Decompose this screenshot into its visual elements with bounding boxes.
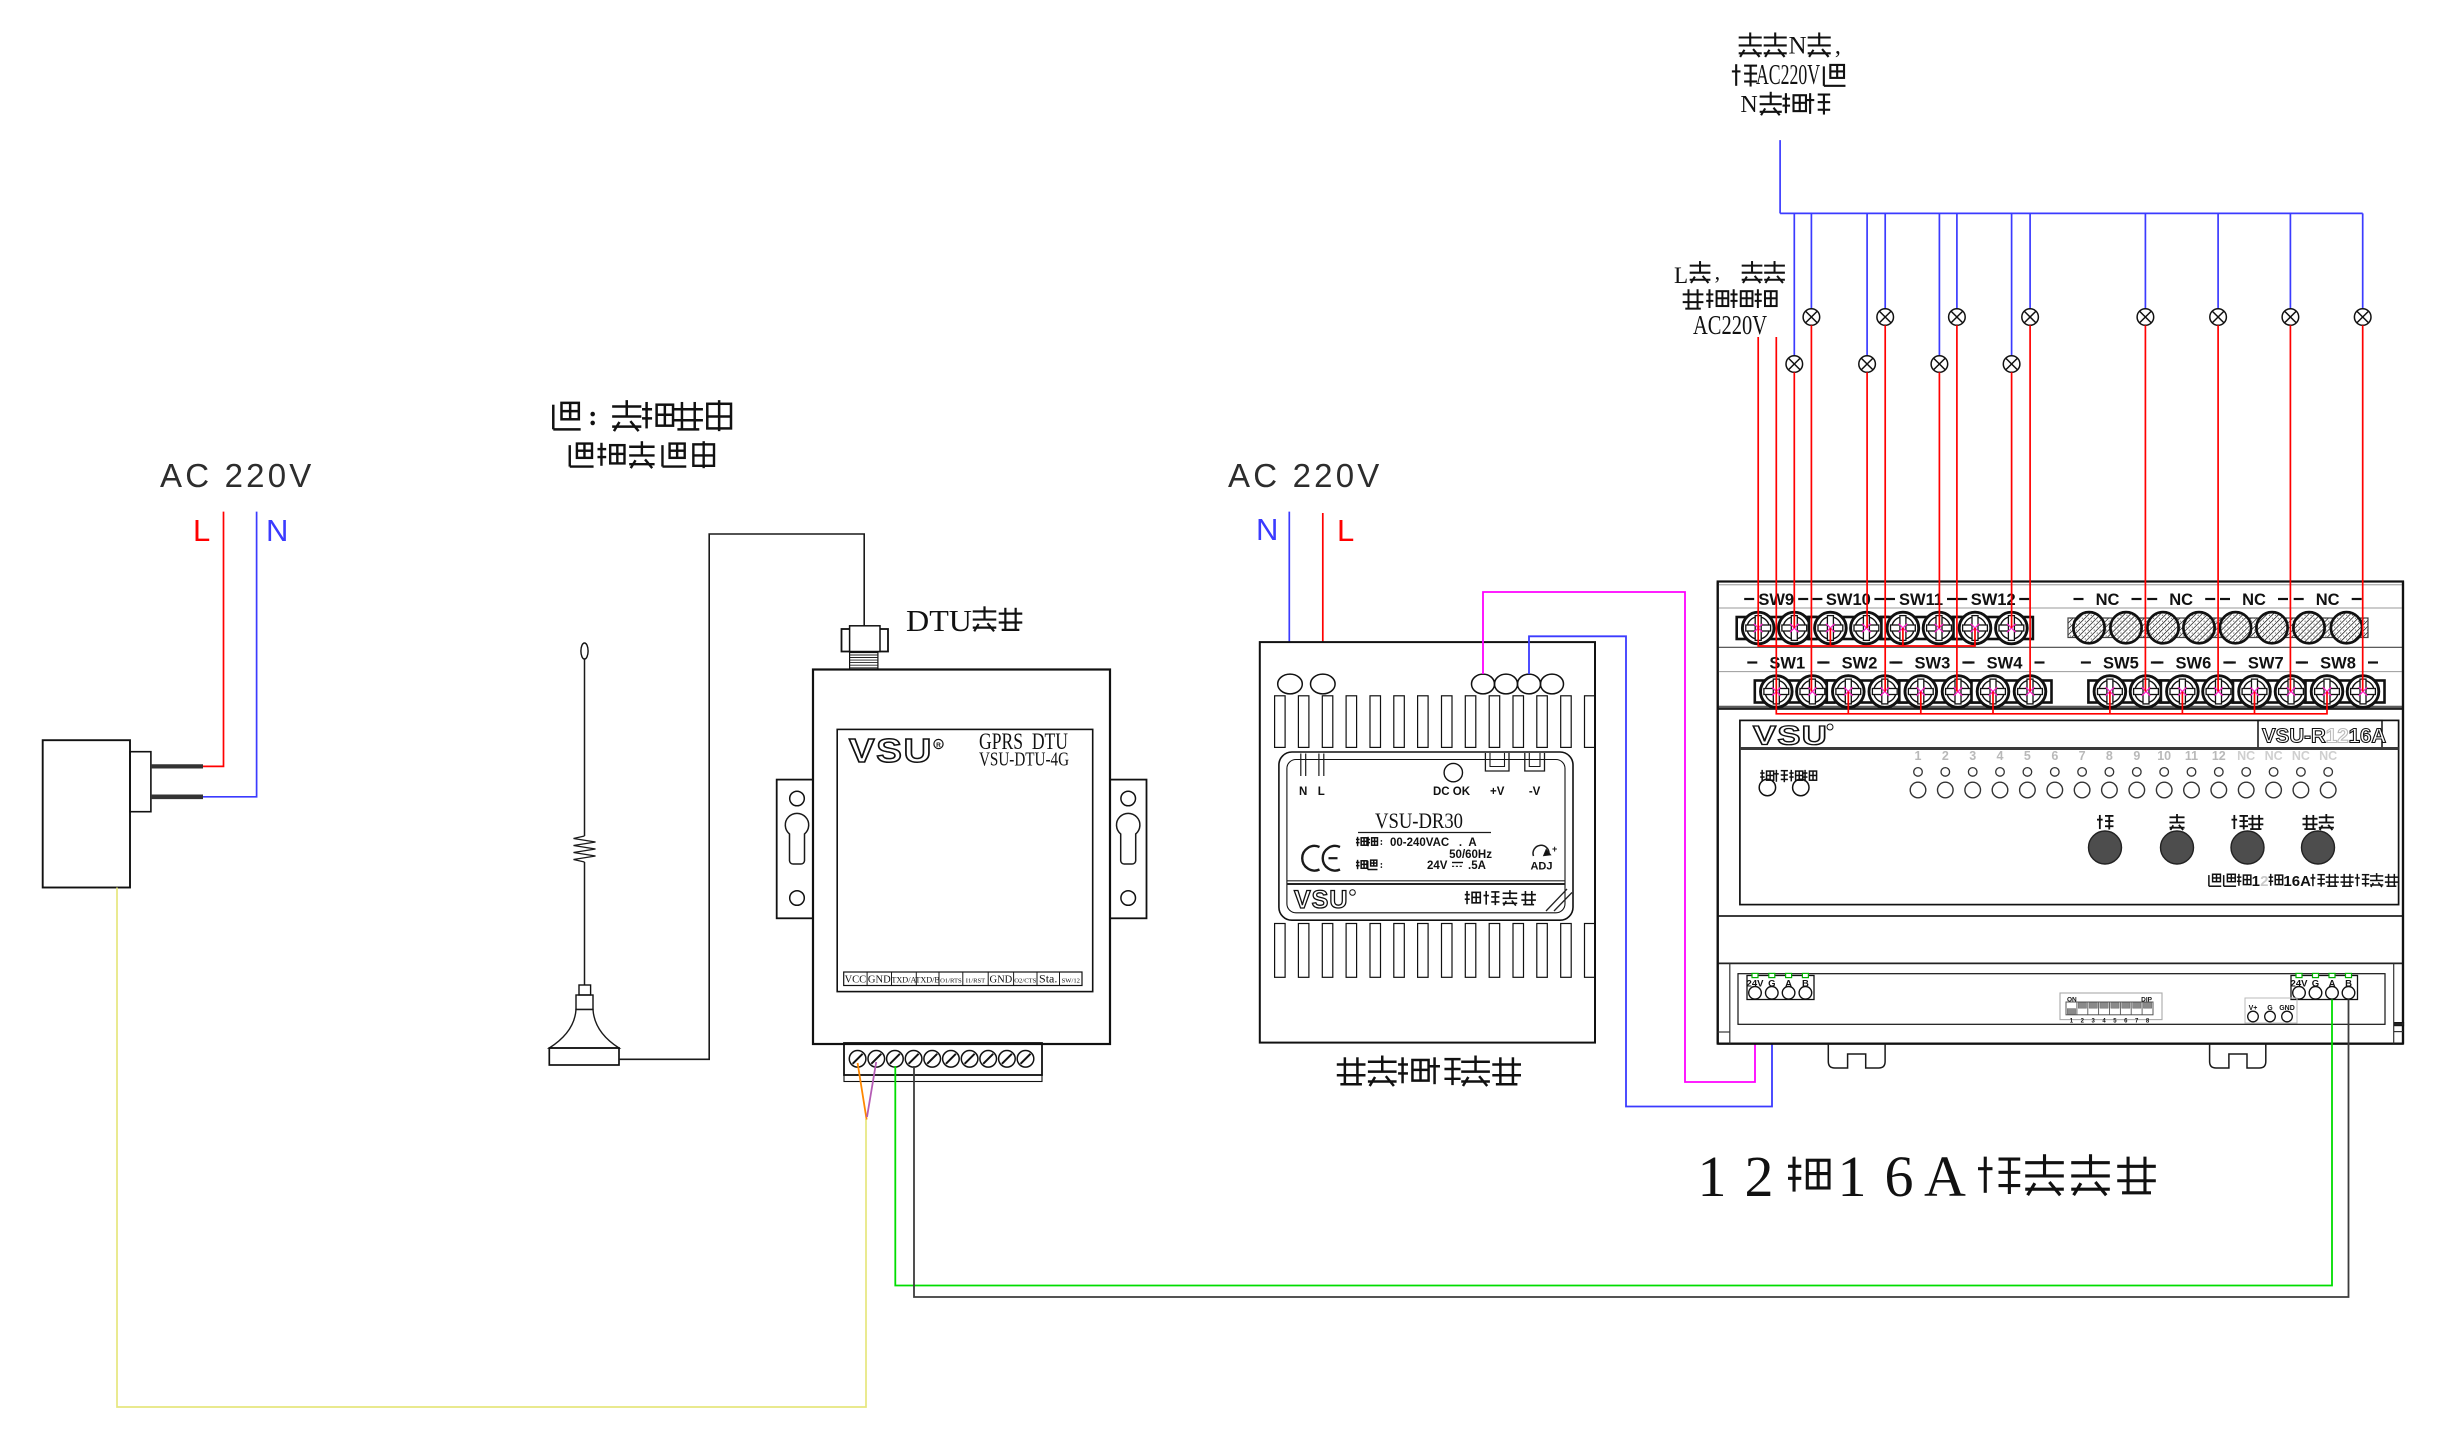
svg-text:DTU: DTU: [906, 603, 972, 638]
svg-text:VSU-DTU-4G: VSU-DTU-4G: [979, 750, 1069, 771]
svg-text:R: R: [936, 742, 941, 749]
svg-text::: :: [588, 401, 597, 432]
svg-text:SW2: SW2: [1842, 655, 1878, 673]
svg-text:SW7: SW7: [2248, 655, 2284, 673]
svg-text:O1/RTS: O1/RTS: [940, 978, 962, 985]
svg-text:SW10: SW10: [1826, 591, 1871, 609]
svg-text:1: 1: [2252, 873, 2260, 890]
svg-text:2: 2: [1745, 1144, 1774, 1209]
svg-text:GND: GND: [868, 975, 891, 986]
svg-text:AC 220V: AC 220V: [160, 457, 314, 494]
svg-text:SW11: SW11: [1899, 591, 1943, 609]
svg-text:SW4: SW4: [1987, 655, 2024, 673]
svg-text:11: 11: [2185, 749, 2198, 763]
svg-text:A: A: [1785, 979, 1792, 990]
svg-text:2: 2: [2260, 873, 2268, 890]
svg-text:N: N: [1740, 92, 1757, 118]
svg-text:A: A: [1924, 1144, 1966, 1209]
svg-text:4: 4: [1997, 749, 2004, 763]
svg-text:8: 8: [2106, 749, 2113, 763]
svg-text:VCC: VCC: [845, 975, 867, 986]
svg-text:.5A: .5A: [1468, 860, 1486, 872]
svg-text:SW1: SW1: [1769, 655, 1805, 673]
svg-text:1: 1: [1915, 749, 1922, 763]
svg-text:AC220V: AC220V: [1756, 60, 1820, 91]
svg-text:+: +: [1552, 844, 1557, 854]
svg-text:,: ,: [1835, 33, 1841, 59]
svg-text:SW8: SW8: [2320, 655, 2356, 673]
svg-text:VSU: VSU: [849, 732, 933, 769]
svg-text::: :: [1380, 837, 1383, 848]
svg-text:A: A: [2329, 979, 2336, 990]
svg-text:NC: NC: [2237, 749, 2255, 763]
svg-text:16A: 16A: [2283, 873, 2311, 890]
svg-text:9: 9: [2133, 749, 2140, 763]
svg-text:1: 1: [1838, 1144, 1867, 1209]
svg-text:2: 2: [1942, 749, 1949, 763]
svg-text:SW5: SW5: [2103, 655, 2139, 673]
svg-text:VSU: VSU: [1753, 721, 1828, 751]
svg-text:NC: NC: [2096, 591, 2120, 609]
svg-text:3: 3: [1969, 749, 1976, 763]
svg-text:N: N: [266, 513, 288, 548]
svg-text:-V: -V: [1529, 786, 1541, 798]
svg-text:SW6: SW6: [2176, 655, 2212, 673]
svg-text:AC 220V: AC 220V: [1228, 457, 1382, 494]
svg-text:B: B: [2345, 979, 2352, 990]
svg-text::: :: [1380, 860, 1383, 871]
svg-text:VSU-R1216A: VSU-R1216A: [2262, 725, 2386, 748]
svg-text:12: 12: [2212, 749, 2226, 763]
svg-text:24V: 24V: [2291, 979, 2309, 990]
svg-text:NC: NC: [2265, 749, 2283, 763]
svg-text:NC: NC: [2242, 591, 2266, 609]
svg-text:L: L: [193, 513, 210, 548]
svg-text:SW12: SW12: [1971, 591, 2016, 609]
svg-text:7: 7: [2079, 749, 2086, 763]
svg-text:NC: NC: [2316, 591, 2340, 609]
svg-text:TXD/A: TXD/A: [891, 976, 916, 985]
svg-text:L: L: [1674, 263, 1688, 288]
svg-text:00-240VAC . A: 00-240VAC . A: [1390, 837, 1477, 849]
svg-text:NC: NC: [2292, 749, 2310, 763]
svg-text:N: N: [1789, 33, 1807, 60]
svg-text:VSU-DR30: VSU-DR30: [1375, 808, 1463, 833]
svg-text:Sta.: Sta.: [1039, 972, 1057, 986]
svg-text:DC OK: DC OK: [1433, 786, 1471, 798]
svg-text:N: N: [1256, 512, 1278, 547]
svg-text:ADJ: ADJ: [1530, 861, 1552, 873]
svg-text:I1/RST: I1/RST: [966, 978, 985, 985]
svg-text:6: 6: [2051, 749, 2058, 763]
svg-text:L: L: [1318, 786, 1325, 798]
svg-text:L: L: [1337, 513, 1354, 548]
svg-text:NC: NC: [2169, 591, 2193, 609]
svg-text:B: B: [1802, 979, 1809, 990]
svg-text:1: 1: [1698, 1144, 1727, 1209]
svg-text:24V: 24V: [1427, 860, 1448, 872]
svg-text:GND: GND: [990, 975, 1013, 986]
svg-text:G: G: [1768, 979, 1775, 990]
svg-text:24V: 24V: [1747, 979, 1765, 990]
svg-text:O2/CTS: O2/CTS: [1014, 978, 1036, 985]
svg-text:SW/12: SW/12: [1062, 978, 1080, 985]
svg-text:G: G: [2312, 979, 2319, 990]
svg-text:10: 10: [2157, 749, 2171, 763]
svg-text:SW3: SW3: [1915, 655, 1951, 673]
svg-text:6: 6: [1885, 1144, 1914, 1209]
svg-text:N: N: [1299, 786, 1307, 798]
svg-text:AC220V: AC220V: [1693, 310, 1767, 340]
svg-text:5: 5: [2024, 749, 2031, 763]
svg-text:+V: +V: [1490, 786, 1505, 798]
svg-text:,: ,: [1715, 260, 1721, 285]
svg-text:TXD/B: TXD/B: [915, 976, 940, 985]
svg-text:NC: NC: [2319, 749, 2337, 763]
svg-text:VSU: VSU: [1294, 886, 1348, 914]
